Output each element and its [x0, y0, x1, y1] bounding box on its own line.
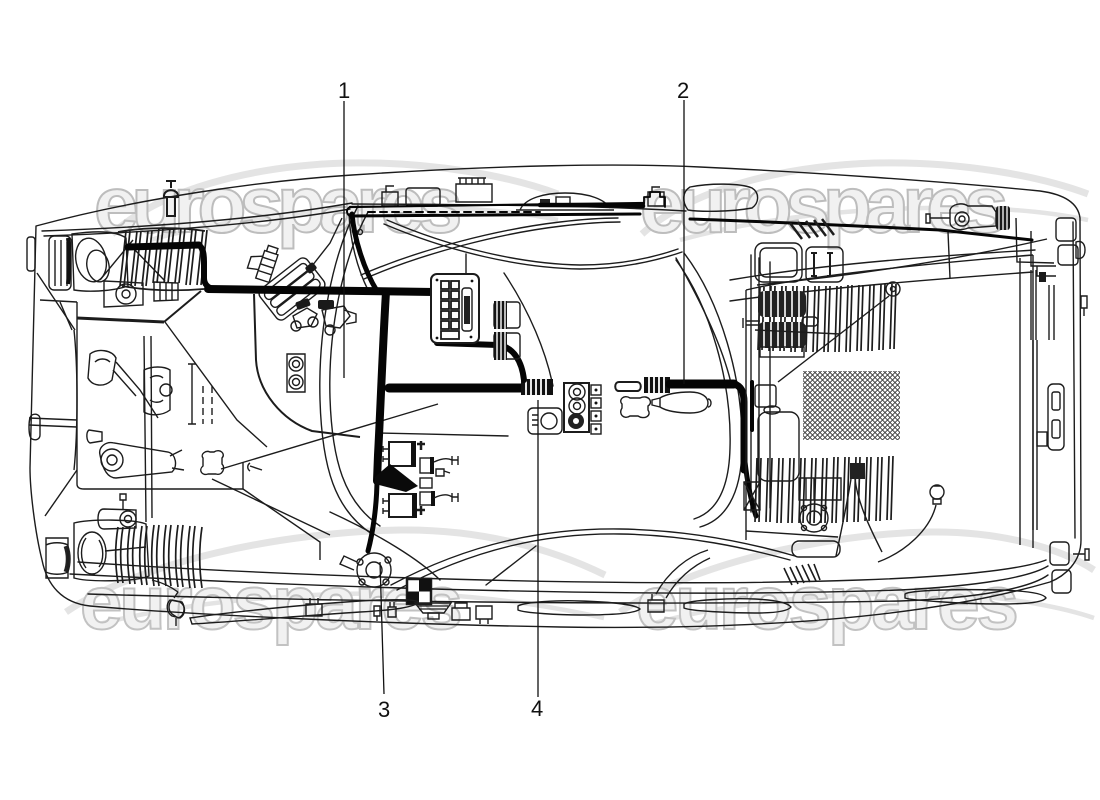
svg-text:4: 4	[531, 696, 543, 721]
svg-text:3: 3	[378, 697, 390, 722]
svg-text:eurospares: eurospares	[80, 561, 460, 646]
svg-text:1: 1	[338, 78, 350, 103]
svg-text:2: 2	[677, 78, 689, 103]
